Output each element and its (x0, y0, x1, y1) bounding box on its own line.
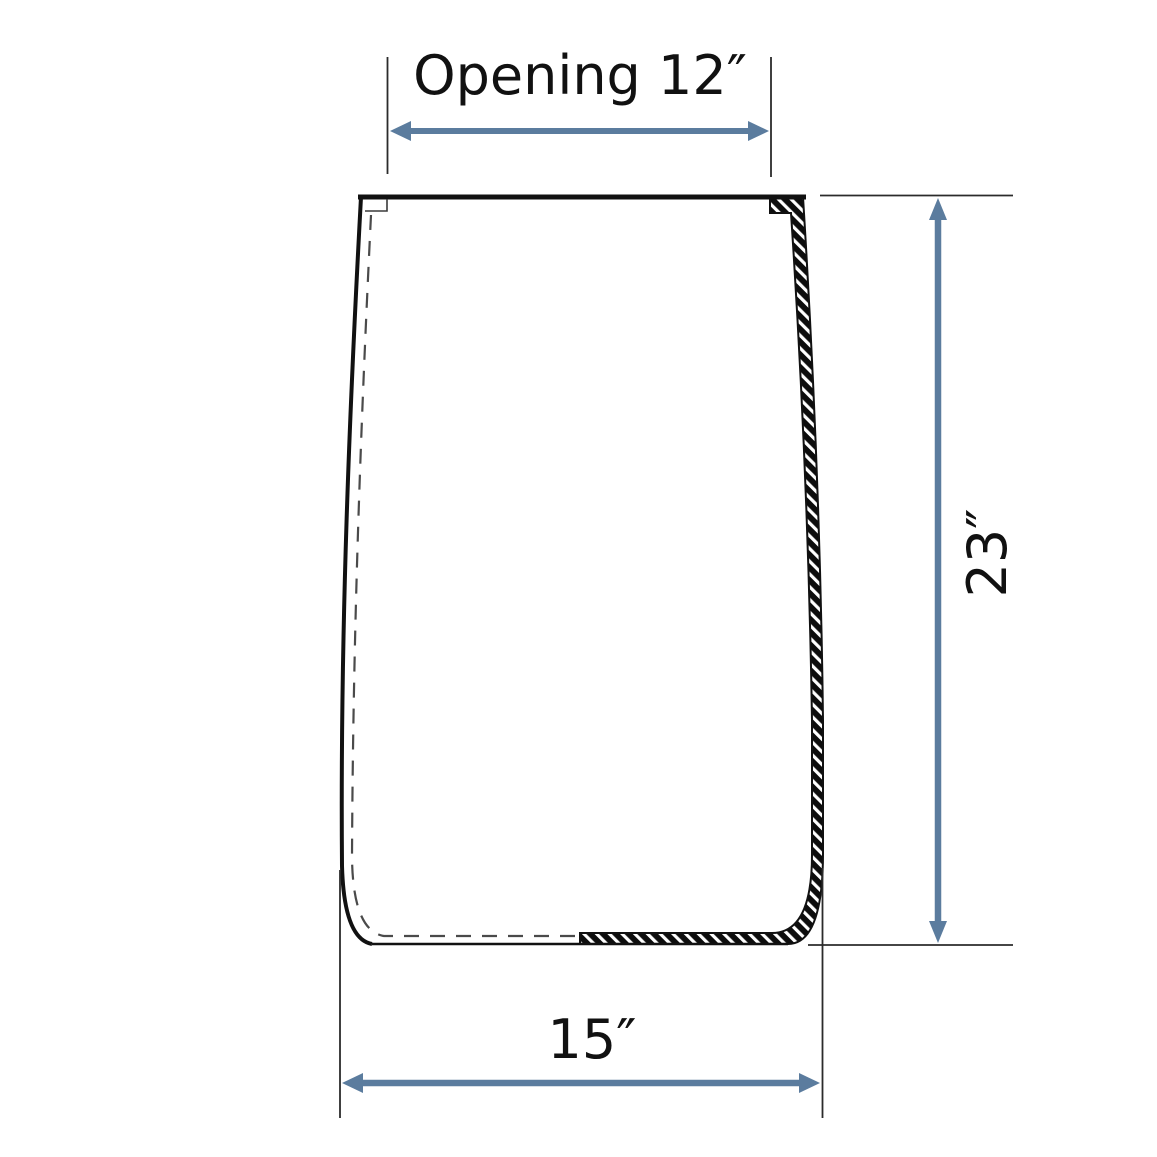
diagram-canvas: Opening 12″ 23″ 15″ (0, 0, 1157, 1157)
dimension-label-opening-width: Opening 12″ (389, 44, 771, 109)
dimension-label-height: 23″ (960, 493, 1016, 613)
vessel-body (342, 197, 823, 944)
dimension-arrow-opening-width (390, 121, 769, 141)
dimension-arrow-height (929, 198, 947, 943)
dimension-label-bottom-width: 15″ (442, 1008, 742, 1073)
dimension-arrow-bottom-width (342, 1073, 820, 1093)
